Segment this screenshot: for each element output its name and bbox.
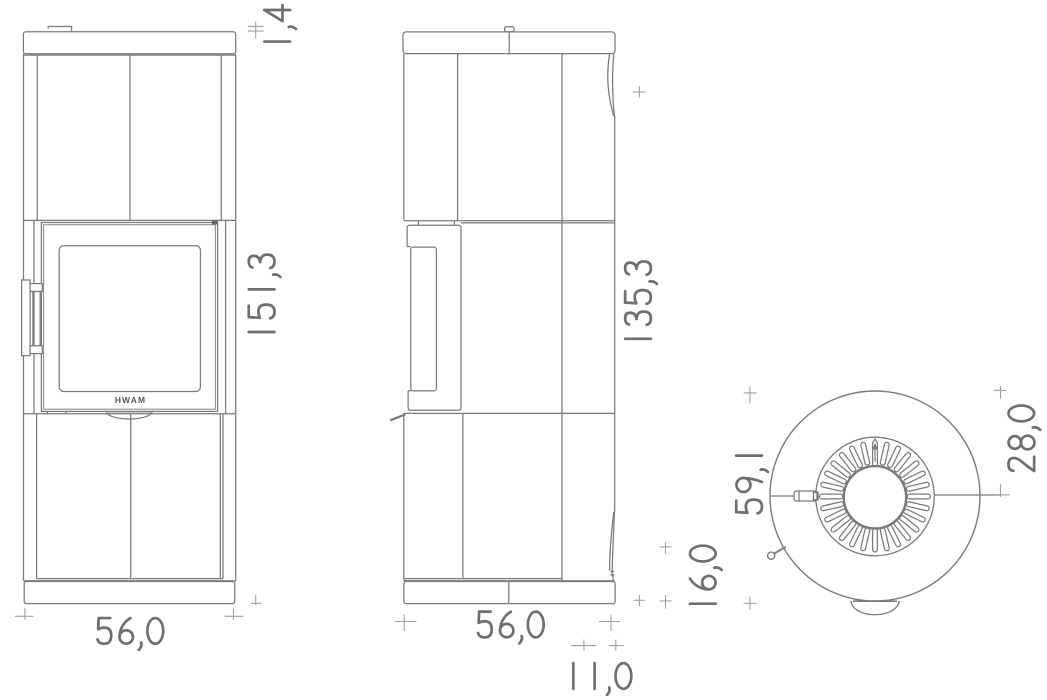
svg-text:HWAM: HWAM (115, 395, 146, 405)
